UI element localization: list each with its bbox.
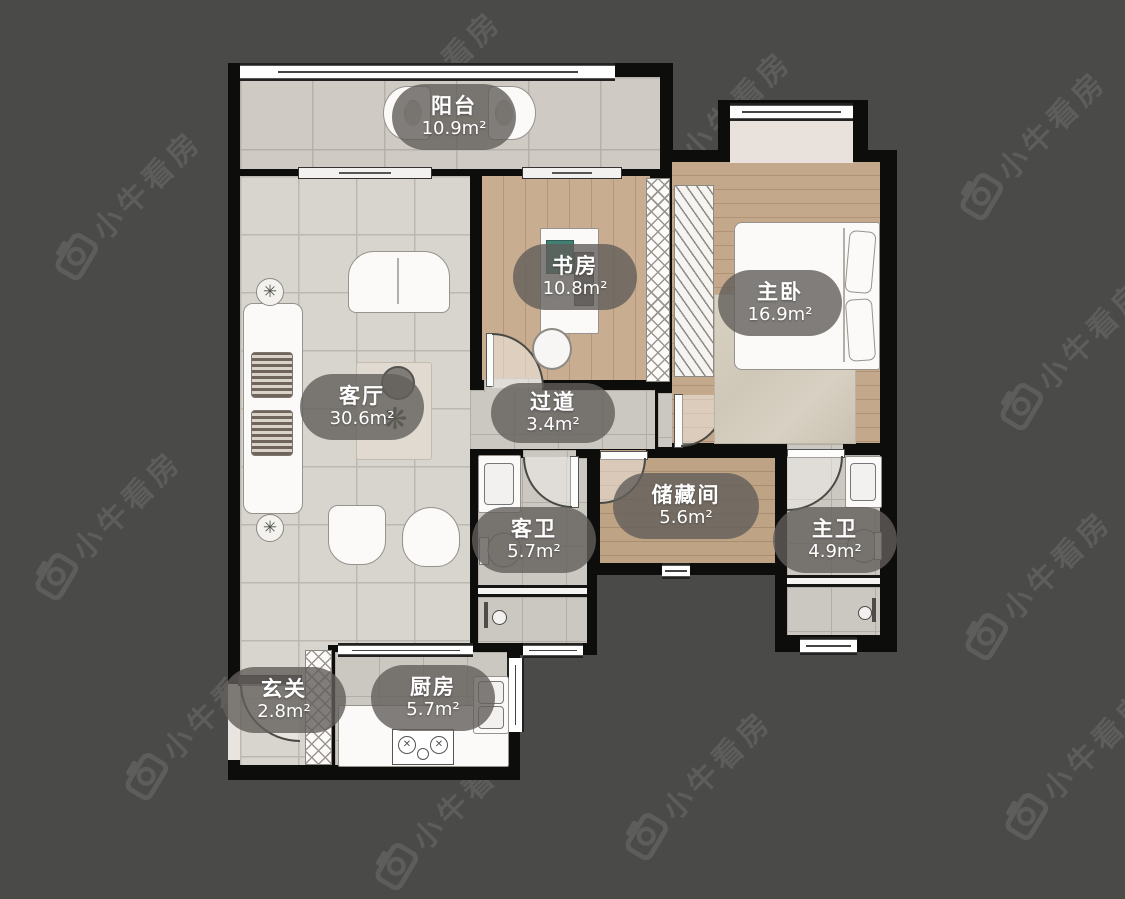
room-label-hallway: 过道 3.4m² [491, 383, 615, 443]
room-name-study: 书房 [552, 254, 598, 278]
room-label-storage: 储藏间 5.6m² [613, 473, 759, 539]
stove-burner-right: ✕ [430, 736, 448, 754]
bedroom-door-opening [658, 393, 672, 447]
stove-burner-left: ✕ [398, 736, 416, 754]
master-shower-pipe [872, 598, 876, 622]
room-area-living-room: 30.6m² [330, 408, 395, 430]
room-area-hallway: 3.4m² [526, 414, 579, 436]
room-area-study: 10.8m² [543, 278, 608, 300]
room-name-living-room: 客厅 [339, 384, 385, 408]
pillow-bottom [845, 298, 876, 362]
room-label-balcony: 阳台 10.9m² [392, 84, 516, 150]
stove-burner-center [417, 748, 429, 760]
room-area-master-bedroom: 16.9m² [748, 304, 813, 326]
floor-plan-page: { "watermark": { "text": "小牛看房" }, "plan… [0, 0, 1125, 844]
room-label-living-room: 客厅 30.6m² [300, 374, 424, 440]
room-label-study: 书房 10.8m² [513, 244, 637, 310]
bay-window-sill [730, 117, 853, 163]
guest-bathroom-window [523, 643, 583, 658]
room-area-balcony: 10.9m² [422, 118, 487, 140]
balcony-window [240, 63, 615, 81]
study-wardrobe [646, 178, 670, 382]
room-label-master-bathroom: 主卫 4.9m² [773, 507, 897, 573]
master-shower-head [858, 606, 872, 620]
room-area-storage: 5.6m² [659, 507, 712, 529]
floor-plan: ✳ ✳ ❋ ✕ ✕ 阳台 10.9m² 客厅 30.6m² [0, 0, 1125, 844]
pillow-top [844, 230, 876, 294]
room-name-master-bedroom: 主卧 [757, 280, 803, 304]
bedroom-wardrobe [674, 185, 714, 377]
bedroom-bay-window [730, 103, 853, 121]
watermark-camera-icon [367, 836, 421, 893]
guest-bath-sink [484, 463, 514, 505]
room-name-master-bathroom: 主卫 [812, 517, 858, 541]
long-sofa [243, 303, 303, 514]
room-name-balcony: 阳台 [431, 94, 477, 118]
storage-window [662, 563, 690, 579]
plant-pot-top: ✳ [256, 278, 284, 306]
kitchen-side-window [507, 658, 524, 732]
sofa-cushion-1 [251, 352, 293, 398]
armchair-left [328, 505, 386, 565]
room-name-hallway: 过道 [530, 390, 576, 414]
room-label-master-bedroom: 主卧 16.9m² [718, 270, 842, 336]
kitchen-window [338, 643, 473, 657]
bed-sheet-line [843, 228, 845, 362]
master-shower-partition [787, 575, 880, 587]
desk-chair [532, 328, 572, 370]
room-label-guest-bathroom: 客卫 5.7m² [472, 507, 596, 573]
room-area-guest-bathroom: 5.7m² [507, 541, 560, 563]
room-name-entry: 玄关 [261, 677, 307, 701]
guest-shower-pipe [484, 602, 488, 628]
living-balcony-sliding-door [298, 167, 432, 179]
room-label-kitchen: 厨房 5.7m² [371, 665, 495, 731]
room-area-kitchen: 5.7m² [406, 699, 459, 721]
room-area-entry: 2.8m² [257, 701, 310, 723]
room-name-storage: 储藏间 [652, 483, 721, 507]
sofa-cushion-2 [251, 410, 293, 456]
room-label-entry: 玄关 2.8m² [222, 667, 346, 733]
room-name-guest-bathroom: 客卫 [511, 517, 557, 541]
loveseat-sofa [348, 251, 450, 313]
room-area-master-bathroom: 4.9m² [808, 541, 861, 563]
guest-shower-partition [478, 585, 587, 597]
plant-pot-bottom: ✳ [256, 514, 284, 542]
master-bathroom-window [800, 637, 857, 655]
loveseat-cushion-divider [397, 258, 399, 304]
guest-shower-head [492, 610, 507, 625]
armchair-right [402, 507, 460, 567]
room-name-kitchen: 厨房 [410, 675, 456, 699]
master-bath-sink [850, 463, 876, 501]
study-balcony-sliding-door [522, 167, 622, 179]
